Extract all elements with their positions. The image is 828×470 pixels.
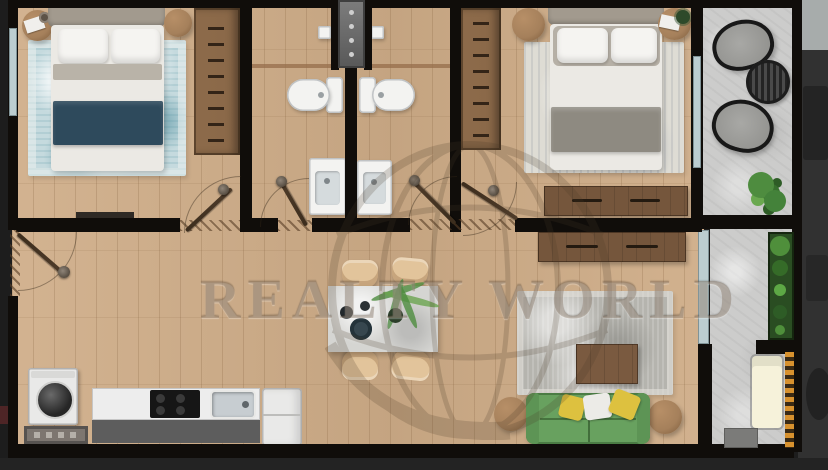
outside-top-right-corner — [800, 0, 828, 50]
neighbor-shape — [806, 255, 828, 301]
sunbed — [752, 356, 782, 428]
bedroom2-dresser — [544, 186, 688, 216]
washing-machine-drum — [36, 381, 74, 419]
outside-left-red-detail — [0, 406, 8, 424]
bedroom1-door-hub — [218, 184, 229, 195]
sofa-seat-split — [588, 420, 590, 442]
tv-console-handle — [626, 245, 658, 248]
bedroom1-wardrobe-rail — [208, 14, 224, 149]
table-bowl — [350, 318, 372, 340]
floor-plan: REALTY WORLD — [0, 0, 828, 470]
bathroom2-toilet-flush — [378, 92, 384, 98]
bedroom2-plant-pot — [676, 10, 690, 24]
wall-top — [8, 0, 794, 8]
shaft-vent-dot — [349, 24, 354, 29]
bedroom2-wardrobe-rail — [473, 14, 489, 144]
wall-spine-c — [312, 218, 410, 232]
kitchen-base-cabinet — [92, 420, 260, 443]
bathroom1-switch-box — [318, 26, 331, 39]
window-bedroom2-balcony — [693, 56, 701, 168]
bathroom1-sink-basin — [315, 171, 340, 205]
bathroom2-switch-box — [371, 26, 384, 39]
planter-foliage — [770, 236, 790, 256]
wall-bottom — [8, 444, 794, 458]
bedroom2-pillow-left — [557, 28, 608, 63]
bathroom2-sink-basin — [363, 172, 386, 204]
bathroom2-door-hub — [409, 175, 420, 186]
wall-spine-d — [515, 218, 702, 232]
bedroom2-pillow-right — [611, 28, 657, 63]
dining-chair — [391, 348, 432, 382]
sink-faucet — [242, 401, 249, 408]
doormat-dot — [58, 432, 64, 438]
table-bowl-small — [360, 301, 370, 311]
wall-between-bathrooms — [345, 66, 357, 232]
neighbor-shape — [803, 86, 828, 160]
wall-shaft-right — [364, 0, 372, 70]
shaft-vent-dot — [349, 10, 354, 15]
bedroom2-stool — [512, 8, 545, 41]
window-left — [9, 28, 17, 116]
bedroom2-dresser-handle — [572, 199, 602, 202]
bedroom1-pillow-left — [58, 29, 108, 63]
cooktop-burner — [156, 394, 165, 403]
entrance-door-hub — [58, 266, 70, 278]
cooktop-burner — [156, 406, 165, 415]
balcony-step — [724, 428, 758, 448]
fridge-door-split — [263, 414, 301, 416]
balcony-round-table — [746, 60, 790, 104]
bedroom2-blanket — [551, 107, 661, 152]
radiator-orange-hatch — [785, 352, 794, 448]
sofa-armrest-left — [526, 393, 539, 444]
cooktop-burner — [176, 394, 185, 403]
bedroom1-pillow-right — [111, 29, 160, 63]
bedroom1-blanket — [53, 101, 163, 145]
tv-console-handle — [566, 245, 598, 248]
dining-chair — [342, 260, 378, 288]
sliding-window-living-balcony — [698, 230, 709, 344]
doormat-dot — [34, 432, 40, 438]
bedroom2-door-hub — [488, 185, 499, 196]
tv-console — [538, 232, 686, 262]
shaft-vent-dot — [349, 38, 354, 43]
table-bowl-small — [340, 306, 353, 319]
wall-left-lower — [8, 296, 18, 452]
bedroom2-dresser-handle — [630, 199, 660, 202]
dining-chair — [342, 350, 378, 380]
wall-living-balcony — [698, 344, 712, 448]
cooktop-burner — [176, 406, 185, 415]
bathroom1-door-hub — [276, 176, 287, 187]
bedroom1-headboard — [48, 6, 165, 27]
bedroom1-duvet-fold — [53, 64, 162, 80]
bathroom2-faucet — [371, 179, 377, 185]
balcony-plant-leafs — [764, 190, 786, 212]
wall-bedroom1-bathroom1 — [240, 4, 252, 232]
outside-bottom-strip — [0, 458, 828, 470]
bathroom1-toilet-flush — [318, 92, 324, 98]
fridge — [262, 388, 302, 446]
shaft-vent-dot — [349, 52, 354, 57]
doormat-dot — [70, 432, 76, 438]
doormat-dot — [46, 432, 52, 438]
coffee-table — [576, 344, 638, 384]
pouf-right — [648, 400, 682, 434]
washing-machine-controls — [31, 371, 75, 378]
pouf-left — [494, 397, 528, 431]
neighbor-shape — [806, 368, 828, 420]
bedroom1-stool — [164, 9, 192, 37]
bathroom1-faucet — [324, 178, 330, 184]
table-plant-pot — [388, 308, 403, 323]
wall-balcony-divider — [700, 215, 794, 229]
wall-spine-a — [16, 218, 180, 232]
